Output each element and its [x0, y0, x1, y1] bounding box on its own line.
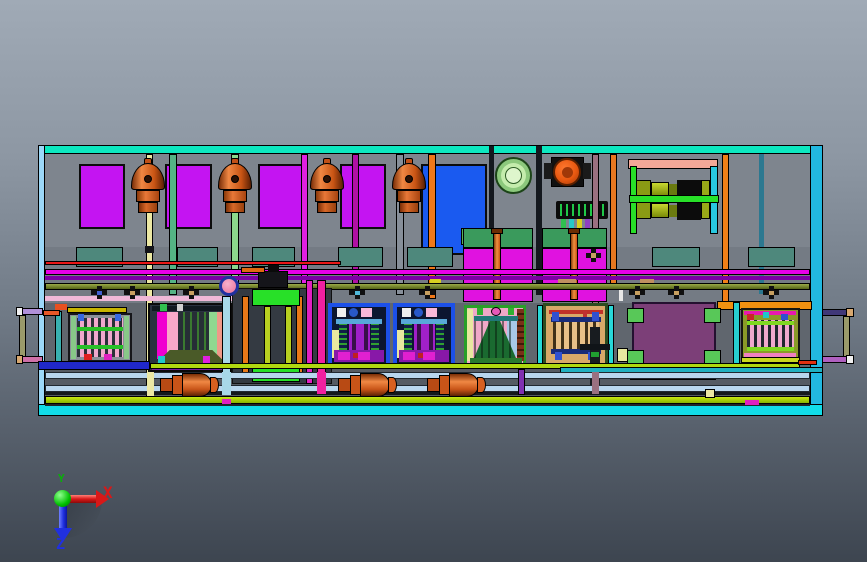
station5-mag-circle — [491, 307, 501, 316]
bell-hole-1 — [144, 175, 152, 183]
flange-hub — [562, 167, 573, 178]
teal-box-4 — [338, 247, 383, 267]
z-axis-arrow — [59, 506, 67, 528]
magenta-dot — [745, 400, 759, 405]
station6-knob — [552, 312, 559, 321]
cylinder-nose — [210, 377, 219, 393]
station1-grid — [77, 318, 123, 357]
rail-purple — [45, 276, 810, 280]
bell-waist-2 — [223, 190, 247, 202]
station5-brown-col — [517, 309, 524, 361]
clamp-dot — [635, 291, 640, 295]
station3-white-sq — [337, 308, 346, 317]
station4-mag-block — [403, 352, 415, 360]
station1-knob — [78, 314, 84, 321]
black-rail-line — [45, 392, 810, 395]
station1-green-bar-1 — [77, 327, 123, 331]
station7-green-bar — [747, 321, 794, 325]
tank-1-cap — [491, 228, 503, 234]
station6-cyan-right — [608, 305, 614, 365]
clamp-dot — [355, 291, 360, 295]
origin-sphere-icon — [54, 490, 71, 507]
chartreuse-rail-b — [45, 396, 810, 404]
station5-cone-grid — [474, 321, 516, 358]
bell-hole-3 — [323, 175, 331, 183]
rail-magenta — [45, 269, 810, 275]
x-axis-arrowhead-icon — [96, 490, 109, 508]
station4-red-sq — [418, 353, 423, 358]
magenta-dot — [222, 399, 231, 404]
right-stub-vertical — [843, 316, 850, 358]
station6-knob — [592, 312, 599, 321]
cylinder-body — [360, 373, 390, 397]
station7-cyan-bar — [733, 302, 740, 364]
porthole-inner — [505, 167, 522, 184]
motor-end-2 — [701, 201, 710, 219]
z-axis-label: Z — [56, 535, 65, 553]
bell-base-1 — [138, 202, 158, 213]
frame-right-edge — [810, 145, 823, 416]
motor-body-2 — [651, 203, 669, 218]
pale-yellow-seg — [705, 389, 715, 398]
station1-green-left — [71, 316, 76, 359]
purple-post — [518, 369, 525, 395]
rotary-actuator — [219, 276, 239, 296]
station2-knob — [160, 304, 167, 311]
station4-white-sq — [402, 308, 411, 317]
green-fleck — [591, 352, 599, 357]
pink-top-bar — [628, 159, 718, 169]
center-yg-post-a — [264, 306, 271, 367]
station3-mag-block — [338, 352, 350, 360]
center-pink-post — [317, 280, 326, 386]
motor-green-bar — [629, 195, 719, 203]
flange-tab-left — [544, 163, 552, 179]
dark-pipe-crossbar — [580, 344, 610, 350]
teal-box-6 — [652, 247, 700, 267]
magenta-panel-1 — [79, 164, 125, 229]
cylinder-body — [182, 373, 212, 397]
station5-yellow-col — [467, 309, 473, 361]
clamp-dot — [189, 291, 194, 295]
x-axis-label: X — [103, 483, 113, 502]
bell-base-3 — [317, 202, 337, 213]
corner-tab — [704, 308, 721, 323]
upper-clamp-dot — [591, 253, 596, 258]
frame-left-edge — [38, 145, 45, 416]
cyan-column-seg — [222, 372, 231, 395]
center-orange-small — [241, 267, 265, 273]
bell-waist-1 — [136, 190, 160, 202]
center-knob — [268, 265, 279, 272]
magenta-panel-4 — [340, 164, 386, 229]
x-axis-arrow — [70, 495, 96, 503]
cylinder-nose — [388, 377, 397, 393]
dark-blue-bar — [38, 361, 150, 370]
mauve-post-seg — [592, 372, 599, 394]
center-yg-post-b — [285, 306, 292, 367]
teal-box-5 — [407, 247, 453, 267]
left-stub-bottom-cap — [16, 355, 23, 364]
pink-post-seg — [317, 372, 326, 394]
cad-viewport[interactable]: X Z Y — [0, 0, 867, 562]
cylinder-body — [449, 373, 479, 397]
motor-cone-2 — [669, 205, 677, 217]
corner-tab — [627, 308, 644, 323]
band-pale-pink — [45, 296, 235, 301]
tank-2-cap — [568, 228, 580, 234]
station1-green-right — [124, 316, 129, 359]
cylinder-nose — [477, 377, 486, 393]
station1-green-bar-2 — [77, 345, 123, 349]
station1-red-seg — [55, 304, 67, 310]
station3-pink-sq — [361, 308, 372, 317]
station2-knob — [177, 304, 183, 311]
bell-base-4 — [399, 202, 419, 213]
right-stub-bottom-cap — [846, 355, 854, 364]
clamp-dot — [130, 291, 135, 295]
bell-waist-4 — [397, 190, 421, 202]
rail-red — [45, 261, 341, 265]
motor-flange-2 — [636, 201, 651, 219]
red-rail-seg — [798, 360, 817, 365]
pipe-cap — [145, 246, 154, 253]
station7-cyan-knob — [763, 312, 769, 318]
clamp-dot — [97, 291, 102, 295]
station1-teal-side — [55, 311, 62, 365]
station4-mag-block — [423, 352, 435, 360]
bell-waist-3 — [315, 190, 339, 202]
station4-blue-knob — [414, 308, 423, 317]
station7-green-bar — [747, 347, 794, 351]
station5-knob — [477, 308, 483, 315]
dark-rail-line — [45, 404, 810, 406]
station5-knob — [508, 308, 514, 315]
station2-magenta-col — [157, 312, 167, 359]
bell-hole-2 — [231, 175, 239, 183]
station1-knob — [84, 354, 92, 360]
teal-box-7 — [748, 247, 795, 267]
center-black-top — [258, 271, 288, 288]
station3-red-sq — [353, 353, 358, 358]
triad-shadow — [64, 500, 102, 538]
clamp-dot — [769, 291, 774, 295]
station6-knob — [555, 352, 562, 360]
station4-pink-sq — [426, 308, 437, 317]
z-axis-arrowhead-icon — [54, 528, 72, 542]
clamp-dot — [674, 291, 679, 295]
station1-orange-seg — [43, 310, 60, 316]
bell-base-2 — [225, 202, 245, 213]
station6-red-knob — [583, 311, 587, 317]
center-green-plate-top — [252, 289, 300, 306]
motor-mid-2 — [677, 201, 701, 220]
bell-hole-4 — [405, 175, 413, 183]
flange-tab-right — [583, 163, 591, 179]
station3-mag-block — [358, 352, 370, 360]
clamp-dot — [425, 291, 430, 295]
magenta-panel-3 — [258, 164, 303, 229]
frame-top-bar — [38, 145, 822, 154]
station1-knob — [104, 354, 112, 360]
station1-knob — [115, 314, 121, 321]
left-stub-vertical — [19, 315, 26, 358]
station3-blue-knob — [349, 308, 358, 317]
y-axis-label: Y — [58, 472, 65, 485]
